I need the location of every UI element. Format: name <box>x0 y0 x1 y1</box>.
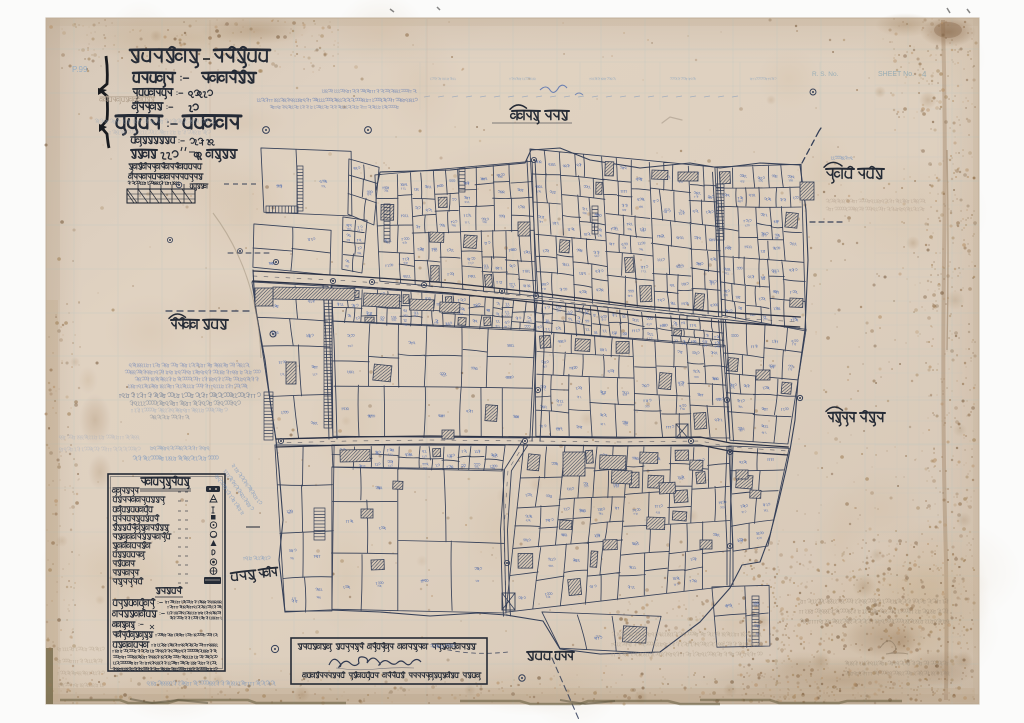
svg-text:P.99: P.99 <box>72 65 88 74</box>
